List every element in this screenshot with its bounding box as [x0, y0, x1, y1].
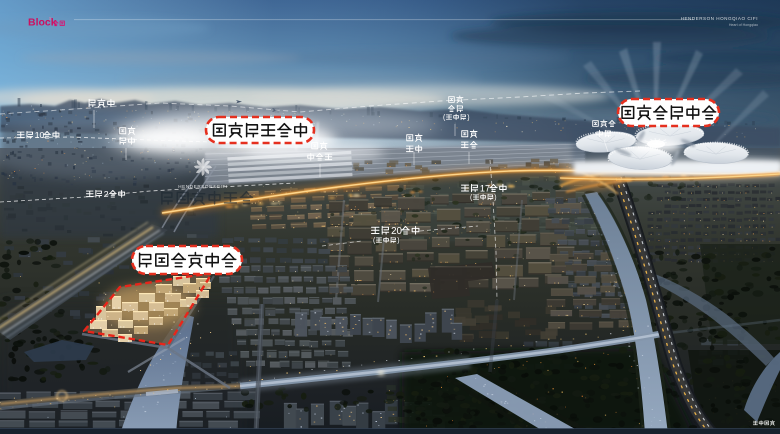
svg-text:17: 17: [480, 183, 490, 193]
svg-text:20: 20: [391, 226, 402, 237]
svg-text:Block: Block: [28, 17, 57, 29]
svg-text:): ): [467, 115, 469, 122]
svg-text:Heart of Hongqiao: Heart of Hongqiao: [729, 23, 758, 27]
svg-text:HENDERSON&CIFI: HENDERSON&CIFI: [178, 184, 228, 189]
svg-text:HENDERSON HONGQIAO CIFI: HENDERSON HONGQIAO CIFI: [681, 16, 758, 21]
svg-text:10: 10: [35, 130, 45, 140]
svg-text:): ): [494, 195, 496, 202]
svg-text:): ): [397, 238, 399, 245]
svg-text:2: 2: [104, 189, 109, 199]
